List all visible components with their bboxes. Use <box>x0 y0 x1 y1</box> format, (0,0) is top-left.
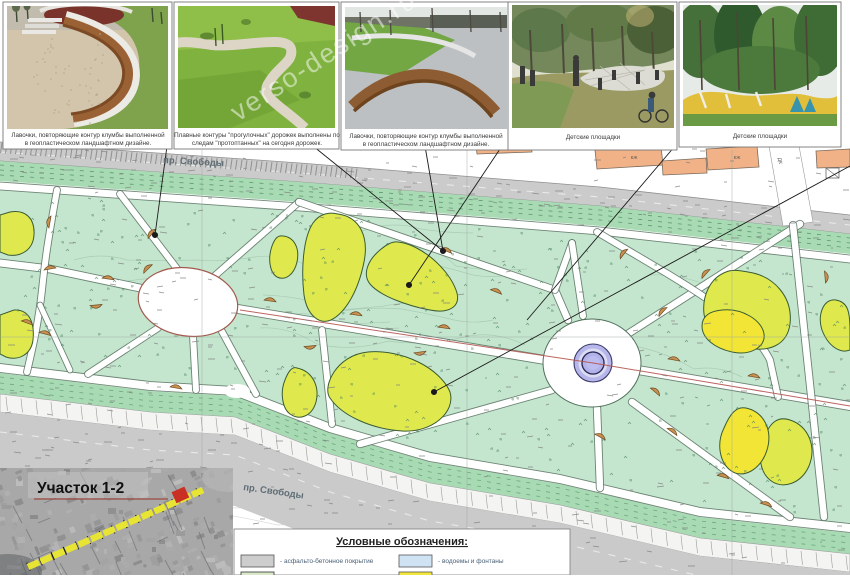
svg-text:ДК: ДК <box>776 157 783 164</box>
svg-text:- асфальто-бетонное покрытие: - асфальто-бетонное покрытие <box>280 557 374 565</box>
svg-text:Плавные контуры "прогулочных": Плавные контуры "прогулочных" дорожек вы… <box>174 132 340 139</box>
svg-text:Детские площадки: Детские площадки <box>566 134 621 141</box>
svg-text:- водоемы и фонтаны: - водоемы и фонтаны <box>438 558 504 565</box>
svg-text:Лавочки, повторяющие контур кл: Лавочки, повторяющие контур клумбы выпол… <box>349 132 503 140</box>
svg-text:в геопластическом ландшафтном: в геопластическом ландшафтном дизайне. <box>25 139 152 147</box>
svg-text:в геопластическом ландшафтном: в геопластическом ландшафтном дизайне. <box>363 140 490 148</box>
svg-text:Условные обозначения:: Условные обозначения: <box>336 536 468 548</box>
svg-text:Детские площадки: Детские площадки <box>733 133 788 140</box>
svg-text:КЖ: КЖ <box>734 155 742 160</box>
svg-text:КЖ: КЖ <box>631 155 639 160</box>
svg-text:Лавочки, повторяющие контур кл: Лавочки, повторяющие контур клумбы выпол… <box>11 131 165 139</box>
svg-text:следам "протоптанных" на сегод: следам "протоптанных" на сегодня дорожек… <box>192 140 322 147</box>
svg-text:Участок 1-2: Участок 1-2 <box>37 480 124 497</box>
